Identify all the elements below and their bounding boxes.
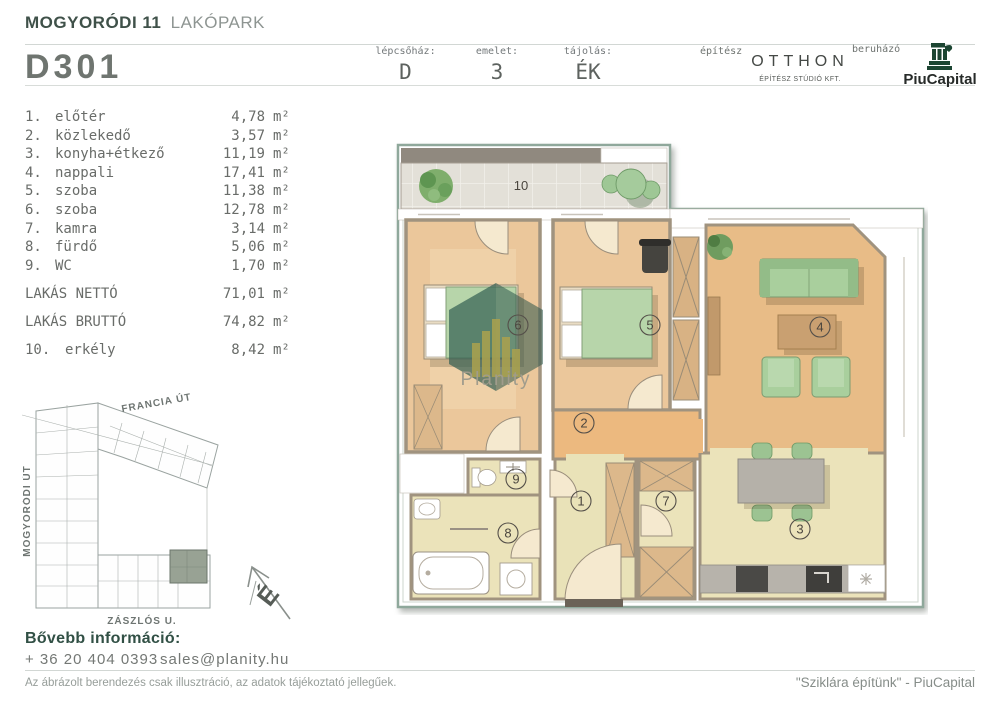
unit-id: D301 bbox=[25, 48, 122, 87]
tv-shelf-icon bbox=[708, 297, 720, 375]
kitchen-counter-icon bbox=[700, 565, 885, 593]
net-area-value: 71,01 bbox=[209, 285, 265, 304]
site-highlighted-unit bbox=[170, 550, 207, 583]
contact-heading: Bővebb információ: bbox=[25, 630, 181, 648]
room-area: 4,78 bbox=[209, 108, 265, 127]
room-hall bbox=[553, 410, 700, 459]
disclaimer-text: Az ábrázolt berendezés csak illusztráció… bbox=[25, 677, 396, 689]
floor-plan: Planity 10 1 2 3 4 5 6 7 8 9 bbox=[388, 137, 928, 615]
room-row: 3.konyha+étkező11,19m² bbox=[25, 145, 295, 164]
room-name: szoba bbox=[55, 182, 209, 201]
architect-logo: OTTHON ÉPÍTÉSZ STÚDIÓ KFT. bbox=[750, 53, 850, 83]
room-unit: m² bbox=[273, 220, 295, 239]
svg-text:3: 3 bbox=[796, 522, 803, 537]
field-orientation-value: ÉK bbox=[543, 60, 633, 84]
room-num: 7. bbox=[25, 220, 55, 239]
label-balcony: 10 bbox=[514, 178, 528, 193]
field-floor-value: 3 bbox=[452, 60, 542, 84]
balcony-row: 10.erkély8,42m² bbox=[25, 341, 295, 360]
room-row: 6.szoba12,78m² bbox=[25, 201, 295, 220]
room-area: 5,06 bbox=[209, 238, 265, 257]
column-icon bbox=[921, 40, 959, 71]
bed-icon bbox=[560, 287, 658, 367]
room-num: 1. bbox=[25, 108, 55, 127]
wardrobe-icon bbox=[606, 463, 634, 557]
room-name: konyha+étkező bbox=[55, 145, 209, 164]
sink-icon bbox=[414, 499, 440, 519]
gross-area-row: LAKÁS BRUTTÓ74,82m² bbox=[25, 313, 295, 332]
svg-text:4: 4 bbox=[816, 320, 823, 335]
gross-area-value: 74,82 bbox=[209, 313, 265, 332]
bathtub-icon bbox=[413, 552, 489, 594]
field-staircase: lépcsőház: D bbox=[358, 46, 453, 84]
washer-icon bbox=[500, 563, 532, 595]
svg-text:2: 2 bbox=[580, 416, 587, 431]
architect-name: OTTHON bbox=[750, 53, 850, 71]
room-row: 7.kamra3,14m² bbox=[25, 220, 295, 239]
room-unit: m² bbox=[273, 238, 295, 257]
room-num: 8. bbox=[25, 238, 55, 257]
street-top-label: FRANCIA ÚT bbox=[120, 393, 192, 415]
room-name: WC bbox=[55, 257, 209, 276]
net-area-row: LAKÁS NETTÓ71,01m² bbox=[25, 285, 295, 304]
svg-text:9: 9 bbox=[512, 472, 519, 487]
room-unit: m² bbox=[273, 164, 295, 183]
balcony-name: erkély bbox=[65, 341, 209, 360]
room-row: 5.szoba11,38m² bbox=[25, 182, 295, 201]
coffee-table-icon bbox=[778, 315, 842, 355]
svg-text:6: 6 bbox=[514, 318, 521, 333]
gross-area-label: LAKÁS BRUTTÓ bbox=[25, 313, 209, 332]
room-num: 3. bbox=[25, 145, 55, 164]
room-row: 9.WC1,70m² bbox=[25, 257, 295, 276]
architect-subtitle: ÉPÍTÉSZ STÚDIÓ KFT. bbox=[754, 74, 846, 83]
room-num: 4. bbox=[25, 164, 55, 183]
room-name: közlekedő bbox=[55, 127, 209, 146]
room-name: kamra bbox=[55, 220, 209, 239]
room-row: 1.előtér4,78m² bbox=[25, 108, 295, 127]
project-name: MOGYORÓDI 11 bbox=[25, 13, 161, 32]
toilet-icon bbox=[472, 468, 496, 487]
piucapital-logo-icon bbox=[921, 40, 959, 71]
compass-icon: É bbox=[248, 567, 290, 619]
net-area-label: LAKÁS NETTÓ bbox=[25, 285, 209, 304]
field-orientation-label: tájolás: bbox=[543, 46, 633, 57]
footer-divider bbox=[25, 670, 975, 671]
room-area: 1,70 bbox=[209, 257, 265, 276]
contact-phone: + 36 20 404 0393 bbox=[25, 651, 158, 668]
watermark-text: Planity bbox=[460, 369, 531, 390]
desk-chair-icon bbox=[639, 239, 671, 273]
site-map: FRANCIA ÚT MOGYORÓDI ÚT ZÁSZLÓS U. É bbox=[22, 393, 312, 631]
room-unit: m² bbox=[273, 257, 295, 276]
room-num: 5. bbox=[25, 182, 55, 201]
room-unit: m² bbox=[273, 127, 295, 146]
field-floor: emelet: 3 bbox=[452, 46, 542, 84]
datasheet-page: MOGYORÓDI 11 LAKÓPARK D301 lépcsőház: D … bbox=[0, 0, 1000, 707]
room-row: 2.közlekedő3,57m² bbox=[25, 127, 295, 146]
header-divider-bottom bbox=[25, 85, 975, 86]
room-row: 4.nappali17,41m² bbox=[25, 164, 295, 183]
wardrobe-icon bbox=[414, 385, 442, 449]
room-name: fürdő bbox=[55, 238, 209, 257]
entry-door-threshold bbox=[565, 599, 623, 607]
plant-icon bbox=[419, 169, 453, 203]
room-name: szoba bbox=[55, 201, 209, 220]
slogan-text: "Sziklára építünk" - PiuCapital bbox=[796, 675, 975, 690]
room-balcony bbox=[401, 148, 667, 209]
room-area: 11,19 bbox=[209, 145, 265, 164]
field-staircase-value: D bbox=[358, 60, 453, 84]
compass-north-label: É bbox=[251, 579, 285, 611]
field-floor-label: emelet: bbox=[452, 46, 542, 57]
room-unit: m² bbox=[273, 145, 295, 164]
balcony-area: 8,42 bbox=[209, 341, 265, 360]
developer-label: beruházó bbox=[852, 44, 900, 55]
svg-text:1: 1 bbox=[577, 494, 584, 509]
page-title: MOGYORÓDI 11 LAKÓPARK bbox=[25, 13, 265, 33]
room-list: 1.előtér4,78m² 2.közlekedő3,57m² 3.konyh… bbox=[25, 108, 295, 359]
room-num: 2. bbox=[25, 127, 55, 146]
contact-email: sales@planity.hu bbox=[160, 651, 289, 668]
svg-text:7: 7 bbox=[662, 494, 669, 509]
room-area: 3,57 bbox=[209, 127, 265, 146]
plant-icon bbox=[707, 234, 733, 260]
room-name: nappali bbox=[55, 164, 209, 183]
room-name: előtér bbox=[55, 108, 209, 127]
room-area: 12,78 bbox=[209, 201, 265, 220]
room-area: 11,38 bbox=[209, 182, 265, 201]
room-unit: m² bbox=[273, 182, 295, 201]
svg-text:5: 5 bbox=[646, 318, 653, 333]
architect-label: építész bbox=[700, 46, 742, 57]
room-unit: m² bbox=[273, 108, 295, 127]
svg-text:8: 8 bbox=[504, 526, 511, 541]
room-row: 8.fürdő5,06m² bbox=[25, 238, 295, 257]
street-bottom-label: ZÁSZLÓS U. bbox=[107, 614, 176, 627]
street-left-label: MOGYORÓDI ÚT bbox=[22, 465, 33, 556]
project-suffix: LAKÓPARK bbox=[171, 13, 265, 32]
sofa-icon bbox=[760, 259, 864, 305]
developer-name: PiuCapital bbox=[900, 71, 980, 88]
room-num: 9. bbox=[25, 257, 55, 276]
field-staircase-label: lépcsőház: bbox=[358, 46, 453, 57]
room-unit: m² bbox=[273, 201, 295, 220]
room-area: 3,14 bbox=[209, 220, 265, 239]
header-divider-top bbox=[25, 44, 975, 45]
room-num: 6. bbox=[25, 201, 55, 220]
room-area: 17,41 bbox=[209, 164, 265, 183]
field-orientation: tájolás: ÉK bbox=[543, 46, 633, 84]
